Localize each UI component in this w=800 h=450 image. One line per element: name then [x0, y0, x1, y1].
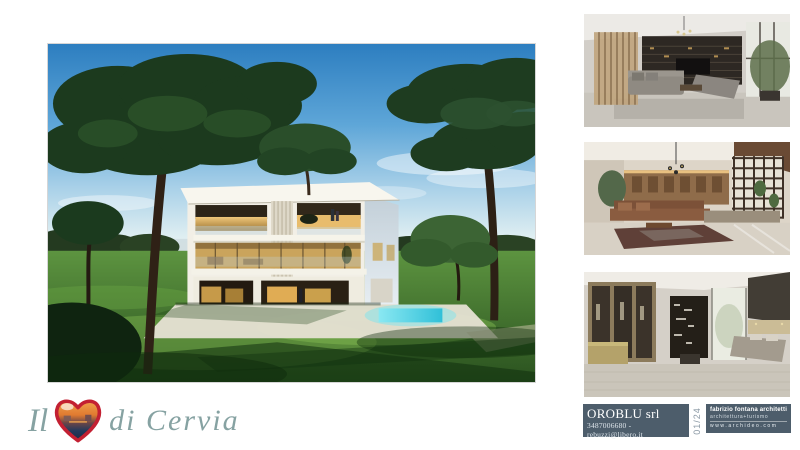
living-room-grey-scene	[584, 14, 790, 127]
villa-scene	[48, 44, 535, 382]
architect-info-block: fabrizio fontana architetti architettura…	[706, 404, 791, 433]
heart-photo-icon	[51, 396, 105, 446]
architect-website: www.archideo.com	[710, 421, 787, 430]
logo-word-il: Il	[28, 405, 51, 438]
gallery-thumb-living-room-grey	[584, 14, 790, 127]
bedroom-scene	[584, 272, 790, 397]
gallery-thumb-bedroom	[584, 272, 790, 397]
architect-name: fabrizio fontana architetti	[710, 407, 787, 414]
villa-exterior-render	[47, 43, 536, 383]
gallery-thumb-living-room-warm	[584, 142, 790, 255]
page-number: 01/24	[688, 404, 706, 437]
il-cuore-di-cervia-logo: Il di Cervia	[28, 394, 240, 448]
logo-word-di-cervia: di Cervia	[105, 406, 240, 436]
company-name: OROBLU srl	[587, 407, 685, 421]
company-contact: 3487006680 - rebuzzi@libero.it	[587, 421, 685, 439]
architect-tagline: architettura+turismo	[710, 414, 787, 420]
page-number-label: 01/24	[692, 407, 702, 435]
living-room-warm-scene	[584, 142, 790, 255]
company-info-block: OROBLU srl 3487006680 - rebuzzi@libero.i…	[583, 404, 689, 437]
brochure-slide: OROBLU srl 3487006680 - rebuzzi@libero.i…	[0, 0, 800, 450]
